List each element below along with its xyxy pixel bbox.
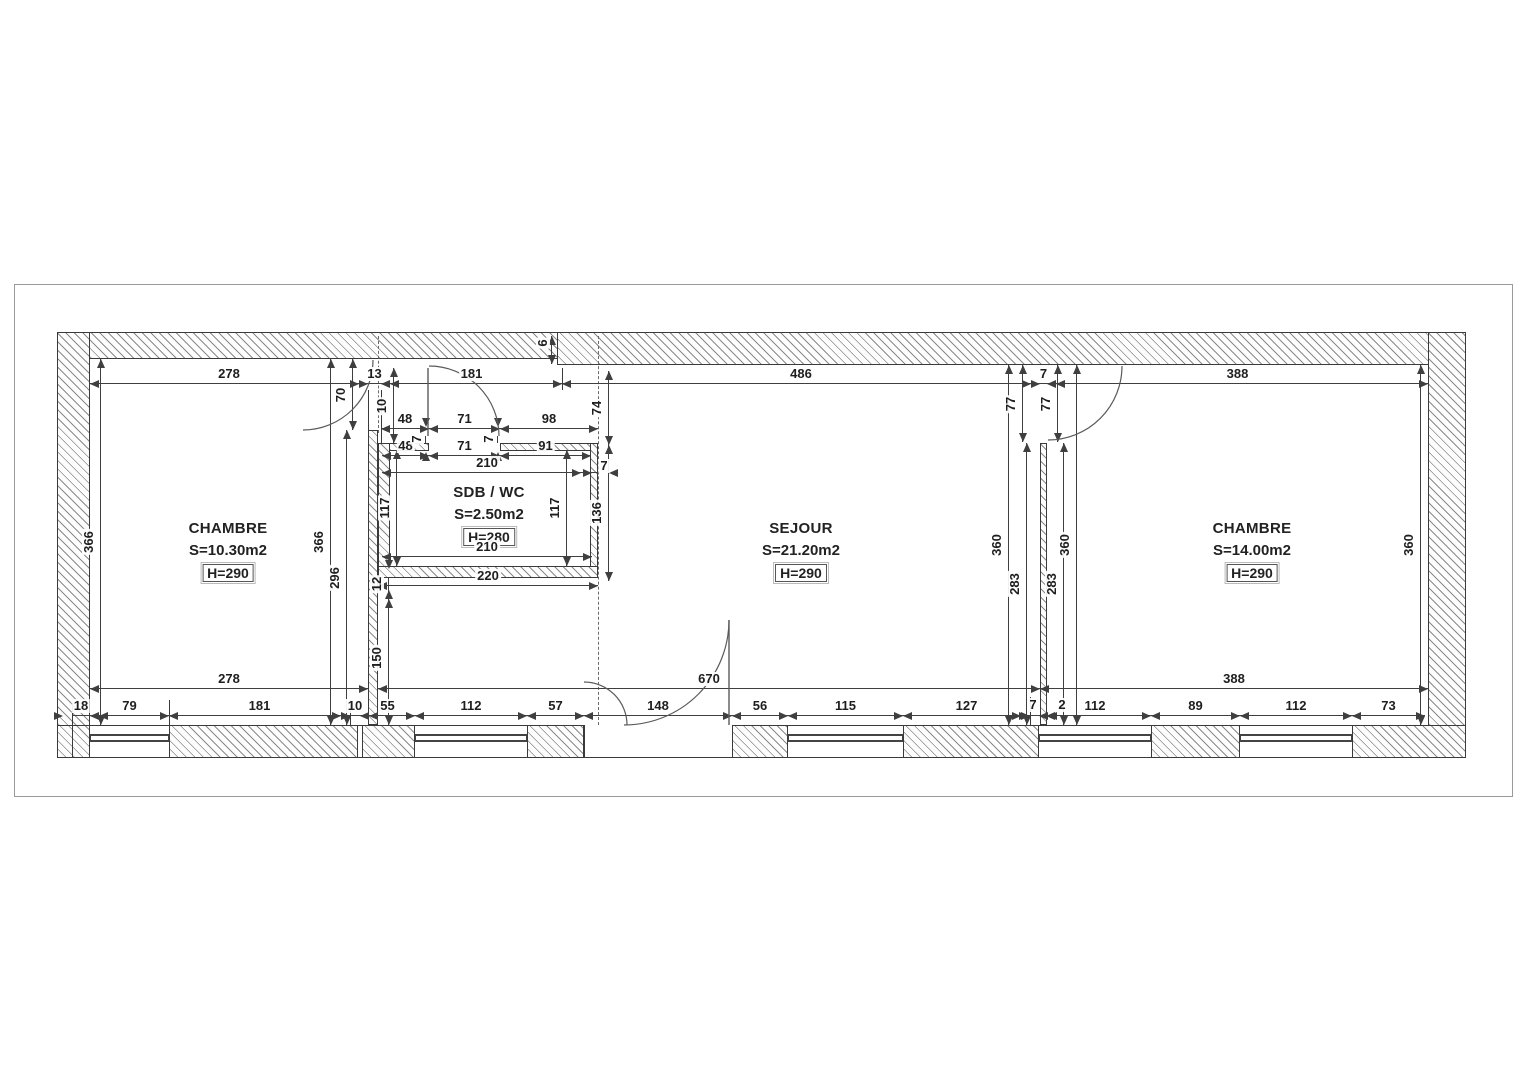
dimension-label: 57 [546, 699, 564, 713]
dimension-label: 360 [1402, 532, 1416, 558]
room-area: S=10.30m2 [189, 542, 268, 559]
dimension-label: 7 [598, 459, 609, 473]
door-arc-chambre-right [1048, 366, 1122, 440]
dimension-label: 112 [1083, 699, 1108, 713]
dimension-label: 48 [396, 412, 414, 426]
dimension-label: 10 [346, 699, 364, 713]
dimension-label: 7 [410, 433, 424, 444]
dimension-label: 115 [833, 699, 858, 713]
room-label-chambre-right: CHAMBRE S=14.00m2 H=290 [1213, 520, 1292, 583]
dimension-label: 13 [365, 367, 383, 381]
dimension-label: 127 [954, 699, 980, 713]
dimension-label: 136 [590, 500, 604, 526]
room-label-chambre-left: CHAMBRE S=10.30m2 H=290 [189, 520, 268, 583]
dimension-label: 296 [328, 565, 342, 591]
dimension-label: 55 [378, 699, 396, 713]
dimension-label: 278 [216, 672, 242, 686]
dimension-label: 7 [482, 433, 496, 444]
dimension-label: 91 [536, 439, 554, 453]
room-height-badge: H=290 [775, 564, 827, 582]
dimension-label: 70 [334, 385, 348, 403]
dimension-label: 388 [1221, 672, 1247, 686]
dimension-label: 112 [459, 699, 484, 713]
dimension-label: 79 [120, 699, 138, 713]
dimension-label: 89 [1186, 699, 1204, 713]
dimension-label: 148 [645, 699, 671, 713]
dimension-label: 2 [1056, 698, 1067, 712]
dimension-label: 670 [696, 672, 722, 686]
dimension-label: 112 [1284, 699, 1309, 713]
dimension-label: 278 [216, 367, 242, 381]
dimension-label: 10 [375, 396, 389, 414]
dimension-label: 181 [247, 699, 273, 713]
room-area: S=21.20m2 [762, 542, 840, 559]
room-label-sejour: SEJOUR S=21.20m2 H=290 [762, 520, 840, 583]
dimension-label: 71 [455, 439, 473, 453]
dimension-label: 74 [590, 399, 604, 417]
room-height-badge: H=290 [202, 564, 254, 582]
room-name: CHAMBRE [1213, 520, 1292, 537]
dimension-label: 7 [1038, 367, 1049, 381]
dimension-label: 360 [990, 532, 1004, 558]
dimension-label: 150 [370, 645, 384, 671]
dimension-label: 366 [312, 529, 326, 555]
dimension-label: 7 [1027, 698, 1038, 712]
dimension-label: 98 [540, 412, 558, 426]
dimension-label: 73 [1379, 699, 1397, 713]
room-area: S=2.50m2 [453, 506, 525, 523]
floor-plan-canvas: CHAMBRE S=10.30m2 H=290 SDB / WC S=2.50m… [0, 0, 1527, 1080]
dimension-label: 360 [1058, 532, 1072, 558]
room-label-sdb: SDB / WC S=2.50m2 H=280 [453, 484, 525, 547]
dimension-label: 388 [1225, 367, 1251, 381]
room-height-badge: H=290 [1226, 564, 1278, 582]
dimension-label: 181 [459, 367, 485, 381]
room-name: SEJOUR [762, 520, 840, 537]
dimension-label: 71 [455, 412, 473, 426]
dimension-label: 283 [1008, 571, 1022, 597]
dimension-label: 210 [474, 540, 500, 554]
dimension-label: 283 [1045, 571, 1059, 597]
dimension-label: 6 [536, 337, 550, 348]
dimension-label: 12 [370, 575, 384, 593]
dimension-label: 210 [474, 456, 500, 470]
dimension-label: 117 [548, 496, 562, 521]
dimension-label: 18 [72, 699, 90, 713]
dimension-label: 486 [788, 367, 814, 381]
dimension-label: 366 [82, 529, 96, 555]
dimension-label: 77 [1039, 394, 1053, 412]
dimension-label: 56 [751, 699, 769, 713]
door-arc-entry-small [584, 682, 627, 725]
dimension-label: 117 [378, 496, 392, 521]
room-name: CHAMBRE [189, 520, 268, 537]
room-name: SDB / WC [453, 484, 525, 501]
room-area: S=14.00m2 [1213, 542, 1292, 559]
dimension-label: 77 [1004, 394, 1018, 412]
dimension-label: 220 [475, 569, 501, 583]
